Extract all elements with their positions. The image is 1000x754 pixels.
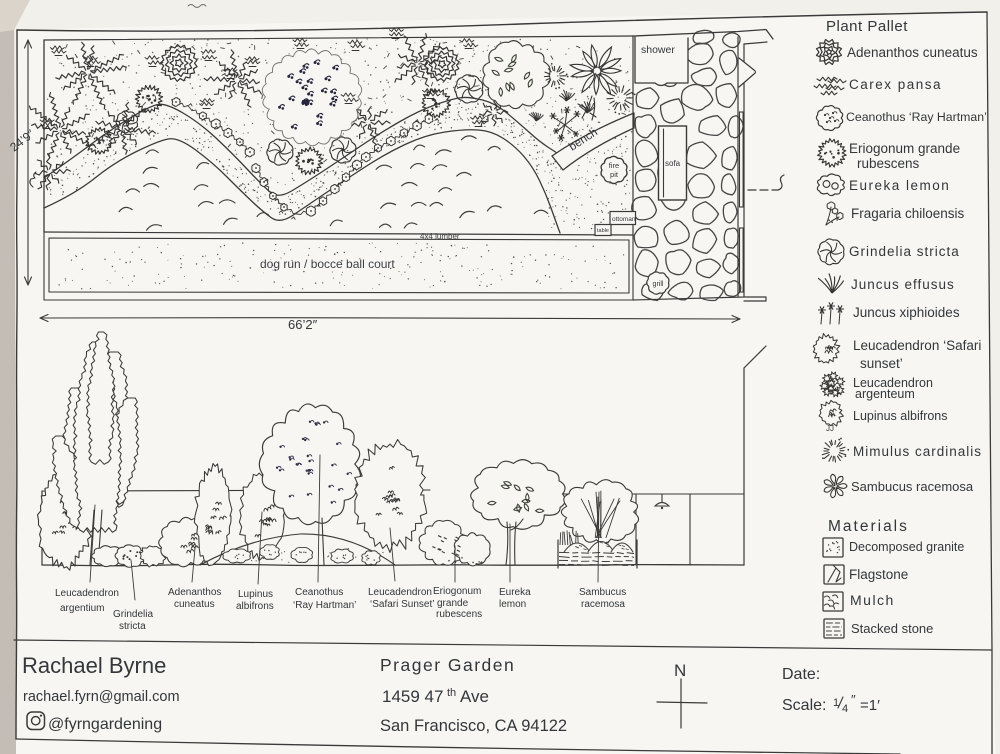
svg-text:rubescens: rubescens: [857, 156, 920, 171]
svg-text:rubescens: rubescens: [436, 609, 482, 620]
svg-text:Mimulus cardinalis: Mimulus cardinalis: [853, 444, 982, 459]
svg-text:albifrons: albifrons: [236, 601, 274, 612]
svg-text:shower: shower: [641, 44, 675, 56]
svg-text:Leucadendron: Leucadendron: [55, 588, 119, 599]
svg-text:Plant Pallet: Plant Pallet: [826, 18, 908, 35]
svg-text:pit: pit: [610, 170, 619, 179]
svg-text:Eureka: Eureka: [499, 587, 531, 598]
svg-text:Ave: Ave: [460, 687, 489, 706]
svg-text:dog run / bocce ball court: dog run / bocce ball court: [260, 257, 395, 271]
svg-text:sofa: sofa: [665, 159, 681, 168]
svg-text:Leucadendron ‘Safari: Leucadendron ‘Safari: [853, 338, 981, 353]
svg-text:Flagstone: Flagstone: [849, 567, 908, 582]
svg-text:Lupinus albifrons: Lupinus albifrons: [853, 409, 948, 423]
svg-text:Mulch: Mulch: [850, 592, 895, 608]
svg-text:Decomposed granite: Decomposed granite: [849, 540, 964, 554]
svg-text:ottoman: ottoman: [612, 216, 636, 223]
svg-text:Scale:: Scale:: [782, 697, 826, 714]
svg-text:table: table: [597, 228, 609, 234]
svg-text:San Francisco, CA 94122: San Francisco, CA 94122: [380, 717, 567, 735]
svg-text:Ceanothus ‘Ray Hartman’: Ceanothus ‘Ray Hartman’: [846, 110, 987, 124]
svg-text:Sambucus: Sambucus: [579, 587, 626, 598]
svg-text:JJ: JJ: [826, 424, 834, 433]
svg-text:th: th: [447, 687, 456, 699]
svg-text:Adenanthos: Adenanthos: [168, 587, 221, 598]
svg-text:stricta: stricta: [119, 621, 146, 632]
svg-text:Prager Garden: Prager Garden: [380, 655, 515, 675]
svg-text:Eriogonum: Eriogonum: [433, 586, 481, 597]
svg-text:″: ″: [851, 692, 856, 707]
svg-text:grill: grill: [653, 281, 664, 288]
svg-text:N: N: [674, 661, 686, 680]
svg-text:4x4 lumber: 4x4 lumber: [420, 232, 460, 241]
svg-text:Lupinus: Lupinus: [238, 589, 273, 600]
svg-text:@fyrngardening: @fyrngardening: [48, 716, 162, 733]
svg-text:sunset’: sunset’: [860, 356, 903, 371]
svg-text:=1′: =1′: [860, 697, 880, 714]
svg-text:Carex pansa: Carex pansa: [849, 77, 942, 92]
svg-text:Juncus xiphioides: Juncus xiphioides: [853, 305, 960, 320]
svg-text:‘Ray Hartman’: ‘Ray Hartman’: [293, 600, 356, 611]
svg-text:lemon: lemon: [499, 599, 526, 610]
svg-text:Adenanthos cuneatus: Adenanthos cuneatus: [847, 45, 978, 60]
svg-text:‘Safari Sunset’: ‘Safari Sunset’: [370, 599, 434, 610]
svg-text:Materials: Materials: [828, 518, 909, 535]
svg-text:Eureka lemon: Eureka lemon: [849, 178, 950, 193]
svg-text:argenteum: argenteum: [855, 387, 915, 401]
svg-text:argentium: argentium: [60, 603, 104, 614]
svg-text:Eriogonum grande: Eriogonum grande: [849, 141, 960, 156]
svg-text:Grindelia: Grindelia: [113, 609, 153, 620]
svg-text:Date:: Date:: [782, 666, 820, 683]
svg-text:Fragaria chiloensis: Fragaria chiloensis: [851, 206, 965, 221]
svg-text:Juncus effusus: Juncus effusus: [851, 277, 955, 292]
svg-text:Grindelia stricta: Grindelia stricta: [849, 244, 960, 259]
svg-text:rachael.fyrn@gmail.com: rachael.fyrn@gmail.com: [23, 689, 180, 705]
svg-text:Sambucus racemosa: Sambucus racemosa: [851, 479, 974, 494]
svg-text:1459 47: 1459 47: [382, 687, 443, 706]
svg-text:4: 4: [842, 703, 848, 715]
svg-text:racemosa: racemosa: [581, 599, 625, 610]
svg-text:66’2″: 66’2″: [288, 317, 318, 332]
svg-text:Ceanothus: Ceanothus: [295, 587, 343, 598]
svg-text:grande: grande: [437, 598, 469, 609]
svg-text:Rachael Byrne: Rachael Byrne: [22, 653, 166, 678]
svg-text:Leucadendron: Leucadendron: [368, 587, 432, 598]
svg-text:Stacked stone: Stacked stone: [851, 621, 933, 636]
svg-text:fire: fire: [609, 161, 619, 170]
svg-text:cuneatus: cuneatus: [174, 599, 215, 610]
